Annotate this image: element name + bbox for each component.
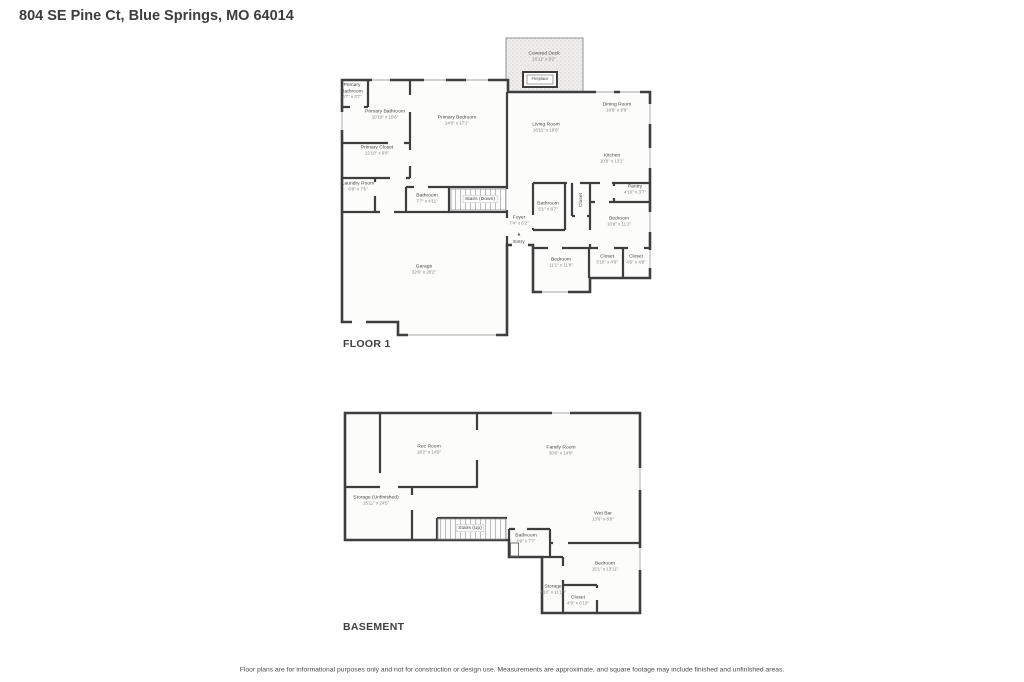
entry-arrow-icon: ▲ (517, 231, 522, 237)
room-label-basement-bathroom: Bathroom 4'9" x 7'7" (515, 532, 536, 544)
basement-section-label: BASEMENT (343, 621, 404, 633)
room-label-bathroom-2: Bathroom 5'1" x 8'7" (537, 200, 558, 212)
floor-plan-page: 804 SE Pine Ct, Blue Springs, MO 64014 (0, 0, 1024, 682)
room-label-primary-bedroom: Primary Bedroom 14'6" x 17'1" (438, 114, 477, 126)
room-label-entry: Entry (513, 239, 525, 245)
room-label-pantry: Pantry 4'10" x 3'7" (624, 183, 646, 195)
room-label-hall-bathroom: Bathroom 7'7" x 4'11" (416, 192, 437, 204)
room-label-closet-hall: Closet (578, 193, 584, 207)
room-label-primary-closet: Primary Closet 12'10" x 6'8" (361, 144, 393, 156)
room-label-basement-bedroom: Bedroom 15'1" x 13'11" (592, 560, 618, 572)
room-label-family-room: Family Room 30'6" x 14'9" (546, 444, 575, 456)
room-label-covered-deck: Covered Deck 16'11" x 9'2" (528, 50, 559, 62)
room-label-stairs-down: Stairs (Down) (463, 195, 497, 203)
room-label-laundry-room: Laundry Room 6'8" x 7'6" (342, 180, 374, 192)
room-label-basement-closet: Closet 4'9" x 6'10" (567, 594, 589, 606)
floor-plan-drawing (0, 0, 1024, 682)
room-label-bedroom-1: Bedroom 10'8" x 11'1" (607, 215, 631, 227)
room-label-garage: Garage 32'6" x 20'2" (412, 263, 436, 275)
room-label-primary-bathroom: Primary Bathroom 10'10" x 10'6" (365, 108, 405, 120)
room-label-closet-1: Closet 3'10" x 4'8" (596, 253, 618, 265)
room-label-wet-bar: Wet Bar 13'6" x 8'9" (592, 510, 614, 522)
room-label-closet-2: Closet 4'6" x 4'8" (626, 253, 645, 265)
floor1-section-label: FLOOR 1 (343, 338, 391, 350)
room-label-stairs-up: Stairs (Up) (456, 524, 484, 532)
disclaimer-text: Floor plans are for informational purpos… (128, 665, 896, 673)
room-label-foyer: Foyer 7'4" x 6'2" (509, 214, 528, 226)
room-label-bedroom-2: Bedroom 11'1" x 11'8" (549, 256, 572, 268)
room-label-rec-room: Rec Room 18'2" x 14'9" (417, 443, 441, 455)
room-label-fireplace: Fireplace (532, 76, 549, 81)
room-label-dining-room: Dining Room 10'8" x 9'9" (603, 101, 632, 113)
room-label-kitchen: Kitchen 10'8" x 13'1" (600, 152, 624, 164)
room-label-primary-bathroom-small: Primary Bathroom 4'7" x 3'7" (336, 82, 368, 101)
room-label-basement-storage: Storage 4'10" x 11'10" (540, 583, 566, 595)
room-label-storage-unfinished: Storage (Unfinished) 15'11" x 24'5" (353, 494, 398, 506)
room-label-living-room: Living Room 16'11" x 19'6" (532, 121, 560, 133)
